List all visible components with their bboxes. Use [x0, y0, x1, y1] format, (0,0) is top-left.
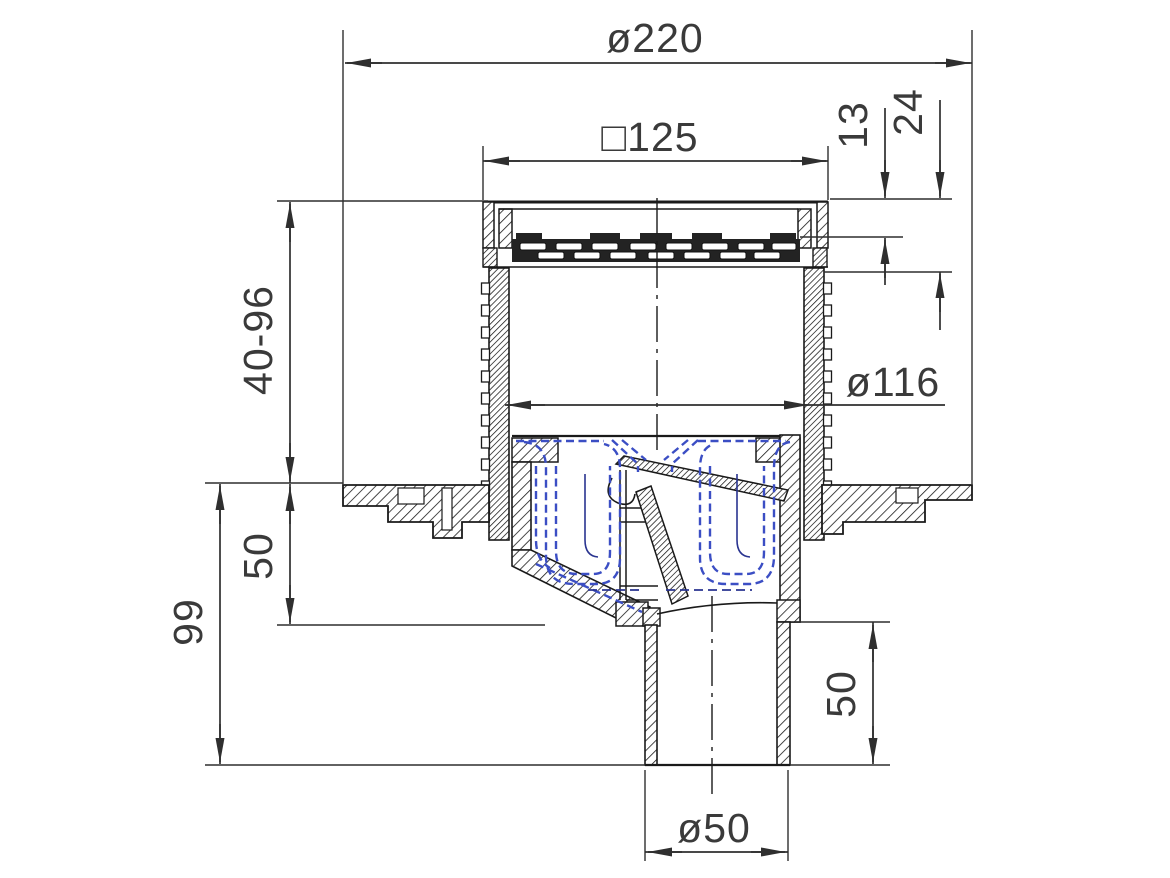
dim-body-inner-diameter: ø116	[846, 359, 940, 405]
arrowheads	[220, 63, 970, 852]
dim-grate-thickness: 13	[830, 101, 876, 149]
dim-socket-depth: 50	[818, 670, 864, 718]
dim-frame-height: 24	[885, 88, 931, 136]
dim-grate-square: □125	[601, 114, 698, 160]
dim-flange-to-outlet-end: 99	[165, 598, 211, 646]
dimensions: ø220 □125 13 24 40-96 ø116 50 99 50 ø50	[165, 15, 972, 861]
outlet-pipe	[643, 600, 800, 765]
dimension-lines	[220, 63, 972, 852]
extension-lines	[205, 30, 972, 861]
grate	[512, 233, 800, 262]
drawing-canvas: ø220 □125 13 24 40-96 ø116 50 99 50 ø50	[0, 0, 1170, 878]
dim-outlet-diameter: ø50	[677, 805, 751, 851]
center-lines	[657, 198, 712, 800]
dim-top-diameter: ø220	[606, 15, 703, 61]
dim-adjustment-height: 40-96	[235, 285, 281, 395]
dim-flange-to-sump: 50	[235, 532, 281, 580]
drain-section-drawing: ø220 □125 13 24 40-96 ø116 50 99 50 ø50	[0, 0, 1170, 878]
